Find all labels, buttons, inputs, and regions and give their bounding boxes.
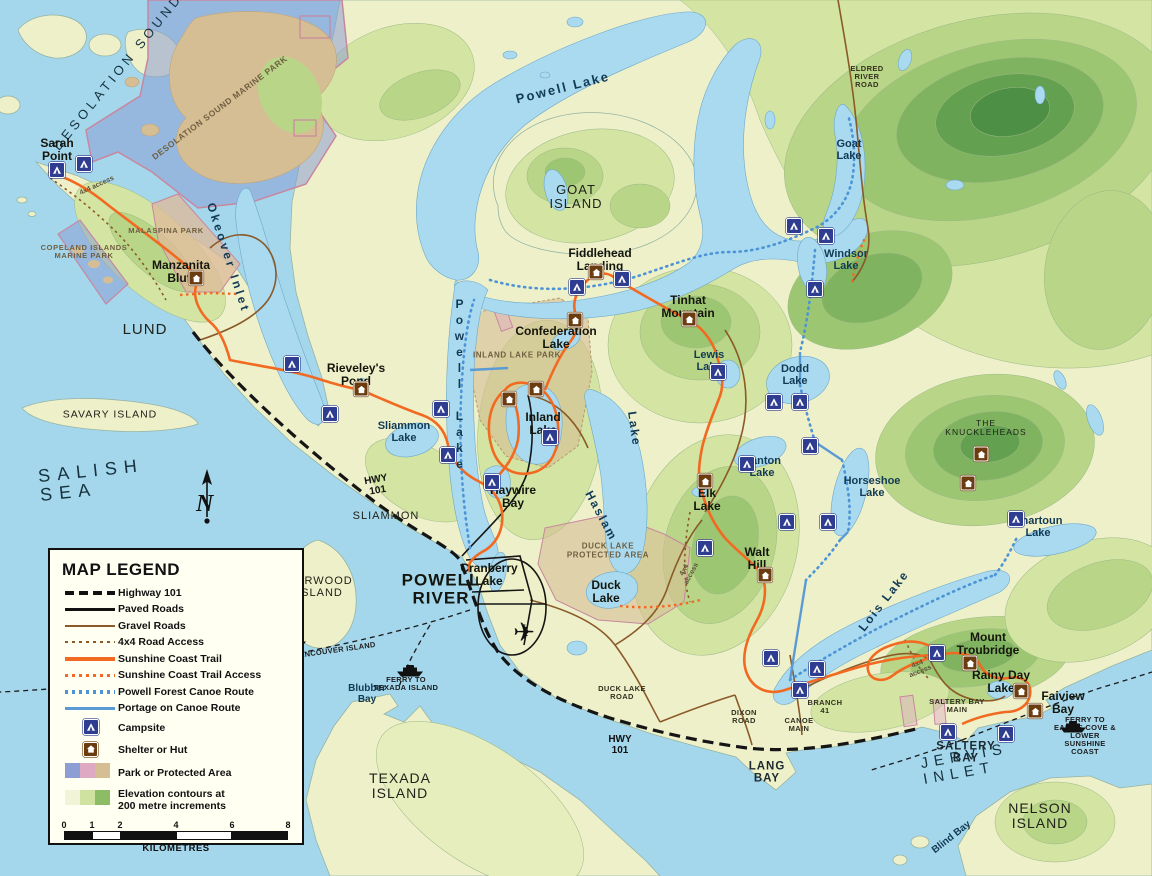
legend-item-paved: Paved Roads [62, 603, 290, 615]
legend-label-sct: Sunshine Coast Trail [118, 653, 222, 665]
legend-item-campsite: Campsite [62, 719, 290, 737]
scale-segment [93, 832, 121, 839]
scale-bar-graphic [64, 831, 288, 840]
map-legend: MAP LEGEND Highway 101Paved RoadsGravel … [48, 548, 304, 845]
scale-bar: 012468 KILOMETRES [62, 820, 290, 854]
legend-swatch-sct-access [62, 674, 118, 678]
legend-swatch-contours [62, 790, 118, 810]
scale-tick: 6 [229, 820, 234, 830]
map-canvas: DESOLATION SOUNDSALISH SEAJERVIS INLETPo… [0, 0, 1152, 876]
legend-label-highway: Highway 101 [118, 587, 182, 599]
legend-swatch-sct [62, 657, 118, 661]
legend-swatch-portage [62, 707, 118, 710]
legend-item-shelter: Shelter or Hut [62, 741, 290, 759]
scale-segment [121, 832, 176, 839]
legend-label-shelter: Shelter or Hut [118, 744, 187, 756]
legend-swatch-park [62, 763, 118, 783]
legend-swatch-gravel [62, 625, 118, 627]
legend-swatch-highway [62, 591, 118, 595]
scale-tick-labels: 012468 [64, 820, 288, 831]
legend-label-portage: Portage on Canoe Route [118, 702, 241, 714]
legend-label-4x4: 4x4 Road Access [118, 636, 204, 648]
legend-item-canoe: Powell Forest Canoe Route [62, 686, 290, 698]
legend-item-gravel: Gravel Roads [62, 620, 290, 632]
legend-swatch-paved [62, 608, 118, 611]
legend-label-campsite: Campsite [118, 722, 165, 734]
scale-segment [65, 832, 93, 839]
legend-item-contours: Elevation contours at 200 metre incremen… [62, 788, 290, 812]
legend-swatch-4x4 [62, 641, 118, 643]
legend-item-sct-access: Sunshine Coast Trail Access [62, 669, 290, 681]
legend-label-park: Park or Protected Area [118, 767, 231, 779]
legend-swatch-campsite [62, 719, 118, 737]
scale-segment [232, 832, 287, 839]
legend-item-highway: Highway 101 [62, 587, 290, 599]
legend-title: MAP LEGEND [62, 560, 290, 580]
scale-tick: 1 [89, 820, 94, 830]
legend-label-canoe: Powell Forest Canoe Route [118, 686, 254, 698]
scale-unit-label: KILOMETRES [64, 843, 288, 854]
scale-segment [177, 832, 232, 839]
scale-tick: 8 [285, 820, 290, 830]
legend-label-gravel: Gravel Roads [118, 620, 186, 632]
legend-label-sct-access: Sunshine Coast Trail Access [118, 669, 261, 681]
legend-item-park: Park or Protected Area [62, 763, 290, 783]
legend-item-portage: Portage on Canoe Route [62, 702, 290, 714]
legend-item-sct: Sunshine Coast Trail [62, 653, 290, 665]
scale-tick: 4 [173, 820, 178, 830]
legend-items: Highway 101Paved RoadsGravel Roads4x4 Ro… [62, 587, 290, 812]
legend-label-paved: Paved Roads [118, 603, 184, 615]
legend-label-contours: Elevation contours at 200 metre incremen… [118, 788, 226, 812]
scale-tick: 2 [117, 820, 122, 830]
legend-swatch-canoe [62, 690, 118, 694]
legend-item-4x4: 4x4 Road Access [62, 636, 290, 648]
legend-swatch-shelter [62, 741, 118, 759]
scale-tick: 0 [61, 820, 66, 830]
